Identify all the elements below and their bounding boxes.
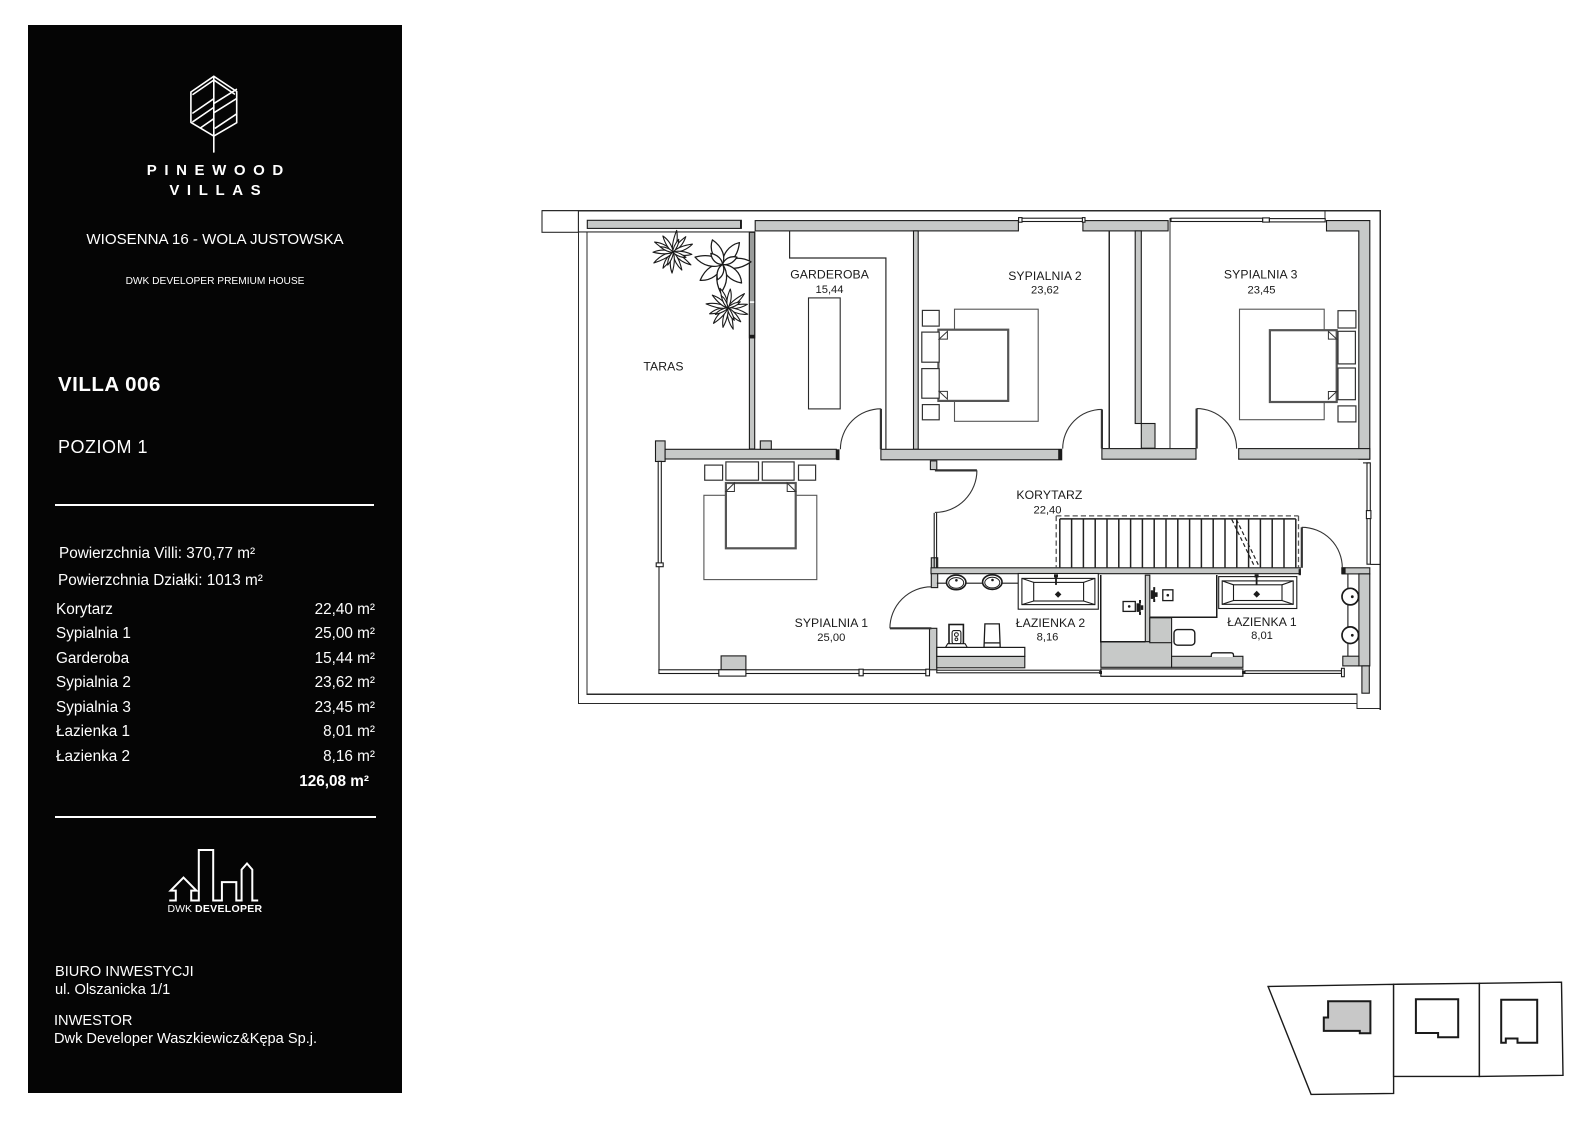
- svg-text:TARAS: TARAS: [643, 360, 683, 374]
- svg-text:25,00: 25,00: [817, 632, 845, 644]
- svg-text:SYPIALNIA 3: SYPIALNIA 3: [1224, 268, 1298, 282]
- svg-text:ŁAZIENKA 1: ŁAZIENKA 1: [1227, 615, 1297, 629]
- svg-text:23,45: 23,45: [1248, 285, 1276, 297]
- svg-text:SYPIALNIA 2: SYPIALNIA 2: [1008, 269, 1082, 283]
- svg-text:SYPIALNIA 1: SYPIALNIA 1: [795, 616, 869, 630]
- svg-text:8,16: 8,16: [1037, 632, 1059, 644]
- svg-text:22,40: 22,40: [1034, 505, 1062, 517]
- svg-text:ŁAZIENKA 2: ŁAZIENKA 2: [1016, 616, 1086, 630]
- svg-text:15,44: 15,44: [816, 284, 844, 296]
- svg-text:KORYTARZ: KORYTARZ: [1016, 488, 1082, 502]
- svg-text:8,01: 8,01: [1251, 630, 1273, 642]
- svg-text:GARDEROBA: GARDEROBA: [790, 267, 870, 281]
- svg-text:23,62: 23,62: [1031, 285, 1059, 297]
